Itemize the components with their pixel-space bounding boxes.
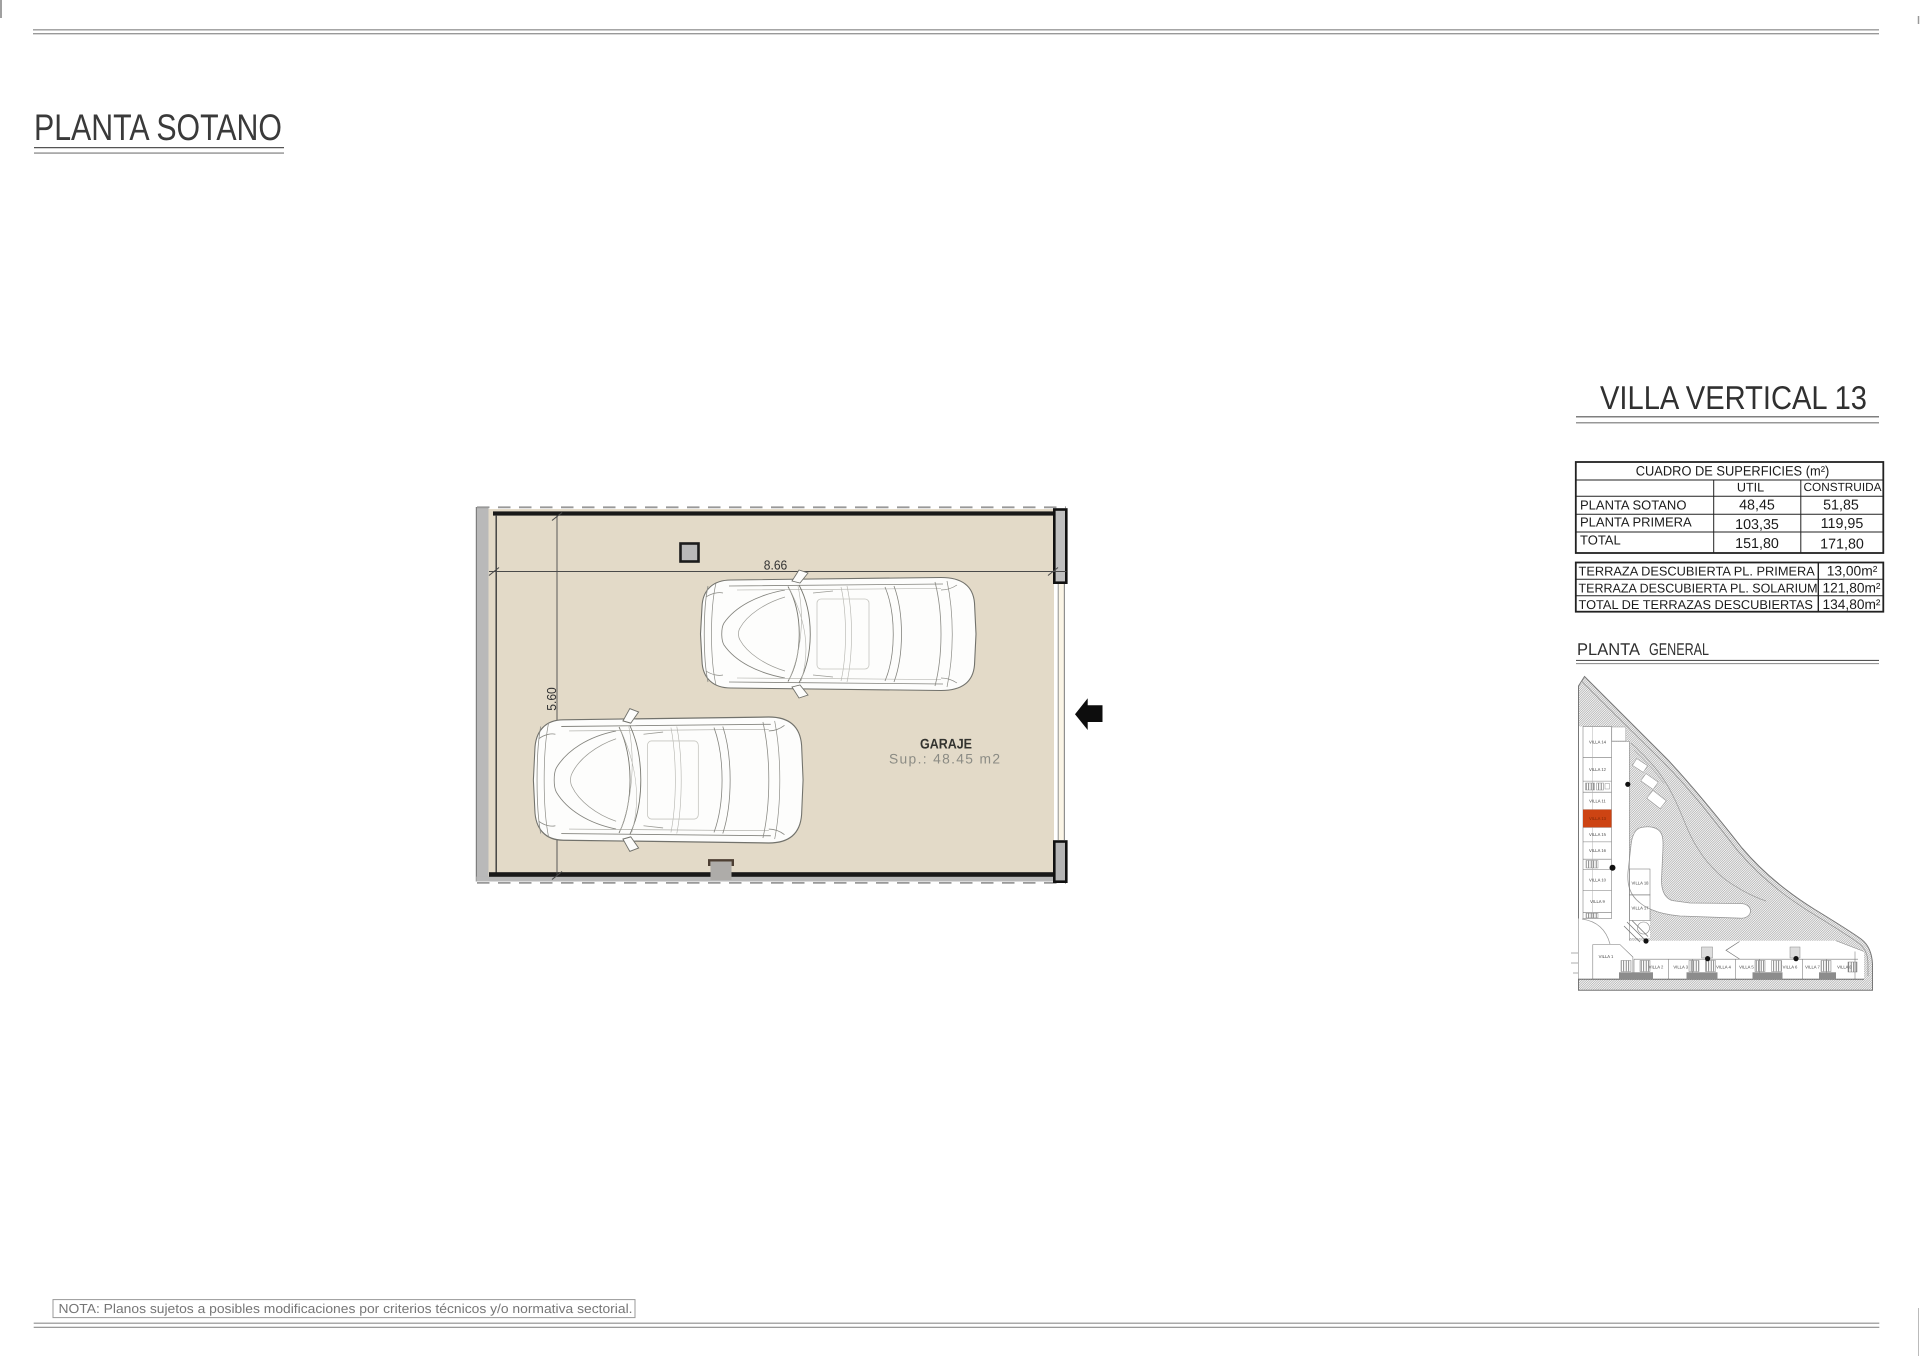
svg-text:VILLA 14: VILLA 14	[1589, 740, 1607, 745]
svg-text:VILLA 8: VILLA 8	[1837, 965, 1852, 970]
svg-text:VILLA 3: VILLA 3	[1673, 965, 1688, 970]
svg-text:VILLA 16: VILLA 16	[1589, 848, 1607, 853]
svg-text:51,85: 51,85	[1823, 498, 1859, 514]
svg-text:VILLA VERTICAL 13: VILLA VERTICAL 13	[1600, 379, 1867, 416]
svg-text:103,35: 103,35	[1735, 517, 1779, 533]
svg-text:VILLA 4: VILLA 4	[1716, 965, 1731, 970]
svg-text:171,80: 171,80	[1820, 537, 1864, 553]
svg-text:151,80: 151,80	[1735, 536, 1779, 552]
svg-text:GARAJE: GARAJE	[920, 736, 972, 752]
svg-text:VILLA 18: VILLA 18	[1632, 880, 1650, 885]
svg-text:VILLA 12: VILLA 12	[1589, 767, 1607, 772]
svg-text:VILLA 7: VILLA 7	[1805, 965, 1820, 970]
svg-text:VILLA 2: VILLA 2	[1649, 965, 1664, 970]
svg-text:VILLA 10: VILLA 10	[1589, 878, 1607, 883]
svg-text:VILLA 1: VILLA 1	[1599, 954, 1614, 959]
svg-text:PLANTA SOTANO: PLANTA SOTANO	[1580, 498, 1686, 513]
svg-text:TERRAZA DESCUBIERTA PL. SOLARI: TERRAZA DESCUBIERTA PL. SOLARIUM	[1579, 580, 1818, 595]
svg-text:TOTAL: TOTAL	[1580, 533, 1621, 548]
svg-text:VILLA 17: VILLA 17	[1632, 905, 1650, 910]
svg-text:Sup.: 48.45 m2: Sup.: 48.45 m2	[889, 752, 1000, 767]
svg-text:VILLA 5: VILLA 5	[1739, 965, 1754, 970]
svg-text:VILLA 13: VILLA 13	[1589, 816, 1607, 821]
svg-text:VILLA 11: VILLA 11	[1589, 799, 1606, 804]
svg-text:NOTA: Planos sujetos a posible: NOTA: Planos sujetos a posibles modifica…	[59, 1301, 633, 1316]
svg-text:48,45: 48,45	[1739, 498, 1775, 514]
svg-text:VILLA 9: VILLA 9	[1590, 899, 1605, 904]
svg-text:PLANTA SOTANO: PLANTA SOTANO	[34, 107, 282, 148]
svg-text:13,00m²: 13,00m²	[1827, 564, 1878, 579]
svg-text:CUADRO DE SUPERFICIES (m²): CUADRO DE SUPERFICIES (m²)	[1636, 464, 1830, 479]
svg-text:8.66: 8.66	[764, 558, 788, 573]
svg-text:TERRAZA DESCUBIERTA PL. PRIMER: TERRAZA DESCUBIERTA PL. PRIMERA	[1579, 564, 1816, 579]
svg-text:PLANTA PRIMERA: PLANTA PRIMERA	[1580, 515, 1692, 530]
svg-text:VILLA 6: VILLA 6	[1783, 965, 1798, 970]
svg-text:CONSTRUIDA: CONSTRUIDA	[1804, 480, 1882, 494]
svg-text:119,95: 119,95	[1821, 516, 1864, 532]
svg-text:TOTAL DE TERRAZAS DESCUBIERTAS: TOTAL DE TERRAZAS DESCUBIERTAS	[1579, 597, 1813, 612]
svg-text:PLANTA: PLANTA	[1577, 640, 1641, 659]
svg-text:VILLA 15: VILLA 15	[1589, 832, 1607, 837]
svg-text:GENERAL: GENERAL	[1649, 640, 1709, 659]
svg-text:134,80m²: 134,80m²	[1823, 597, 1881, 612]
svg-text:5.60: 5.60	[544, 687, 559, 711]
svg-text:121,80m²: 121,80m²	[1823, 580, 1881, 595]
svg-text:UTIL: UTIL	[1737, 480, 1764, 494]
